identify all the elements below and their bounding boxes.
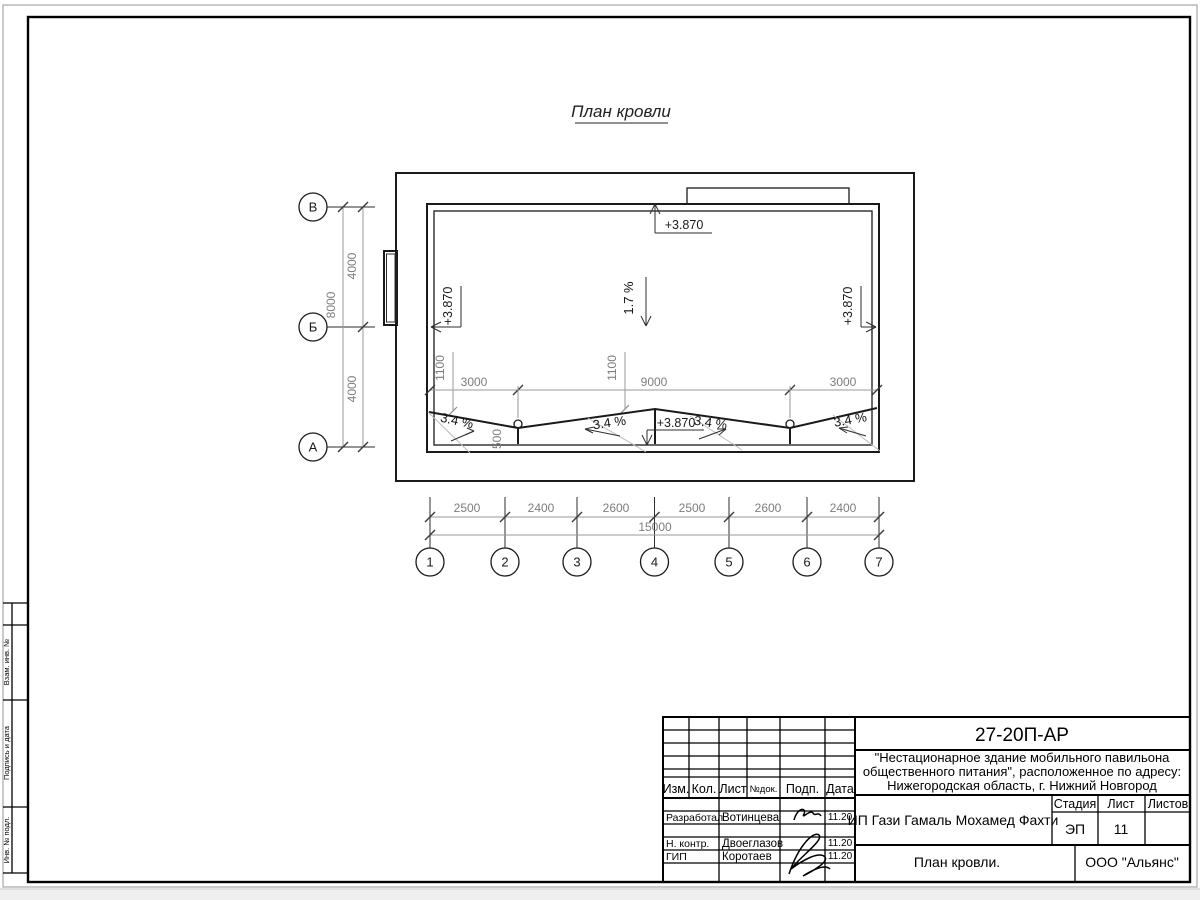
tb-role-developer: Разработал <box>666 812 723 824</box>
dim-drain-offset-500: 500 <box>490 429 504 449</box>
axis-label-7: 7 <box>875 555 882 570</box>
elevation-mark-left: +3.870 <box>431 286 461 332</box>
tb-project-line-3: Нижегородская область, г. Нижний Новгоро… <box>887 778 1157 793</box>
roof-projection-left-inner <box>387 254 396 322</box>
tb-sheet-label: Лист <box>1107 797 1134 811</box>
roof-drain-2 <box>786 420 794 428</box>
roof-drain-1 <box>514 420 522 428</box>
tb-role-gip: ГИП <box>666 851 687 863</box>
dim-col-2400a: 2400 <box>528 501 555 515</box>
tb-project-line-1: "Нестационарное здание мобильного павиль… <box>875 750 1171 765</box>
drawing-canvas: План кровли 3000 9000 3000 1100 <box>0 0 1200 900</box>
tb-sheet-name: План кровли. <box>914 854 1000 870</box>
tb-client: ИП Гази Гамаль Мохамед Фахти <box>848 812 1059 828</box>
page-title: План кровли <box>571 102 671 121</box>
axis-label-a: А <box>309 440 318 455</box>
elevation-mark-right: +3.870 <box>841 286 876 332</box>
axis-label-5: 5 <box>725 555 732 570</box>
row-axes: 8000 4000 4000 В Б А <box>299 193 375 461</box>
tb-col-podp: Подп. <box>786 782 819 796</box>
dim-col-total: 15000 <box>638 520 672 534</box>
axis-label-6: 6 <box>803 555 810 570</box>
tb-name-developer: Вотинцева <box>722 812 780 824</box>
roof-plan: 3000 9000 3000 1100 1100 500 <box>384 173 914 481</box>
axis-label-4: 4 <box>651 555 658 570</box>
axis-label-b: Б <box>309 320 318 335</box>
tb-stage-value: ЭП <box>1065 821 1085 837</box>
dim-roof-3000-left: 3000 <box>461 375 488 389</box>
tb-col-izm: Изм. <box>663 782 690 796</box>
dim-row-total: 8000 <box>324 291 338 318</box>
tb-role-ncontrol: Н. контр. <box>666 838 709 850</box>
elevation-mark-top: +3.870 <box>650 204 712 233</box>
axis-label-3: 3 <box>573 555 580 570</box>
dim-col-2500b: 2500 <box>679 501 706 515</box>
dim-row-4000-bottom: 4000 <box>345 375 359 402</box>
dim-valley-offset-1: 1100 <box>433 355 447 381</box>
slope-label-4: 3.4 % <box>833 409 869 430</box>
tb-date-ncontrol: 11.20 <box>828 838 853 849</box>
drawing-sheet: План кровли 3000 9000 3000 1100 <box>0 0 1200 900</box>
side-stamp-label-1: Взам. инв. № <box>2 639 11 685</box>
tb-doc-number: 27-20П-АР <box>975 725 1069 746</box>
axis-label-v: В <box>309 200 318 215</box>
main-slope-mark: 1.7 % <box>621 277 651 326</box>
dim-valley-offset-2: 1100 <box>605 355 619 381</box>
tb-sheet-value: 11 <box>1114 821 1129 837</box>
slope-label-2: 3.4 % <box>592 413 627 433</box>
title-block: Изм. Кол. Лист №док. Подп. Дата Разработ… <box>663 717 1190 882</box>
dim-row-4000-top: 4000 <box>345 252 359 279</box>
tb-company: ООО "Альянс" <box>1085 854 1179 870</box>
tb-sheets-label: Листов <box>1148 797 1189 811</box>
tb-col-kol: Кол. <box>692 782 717 796</box>
tb-project-line-2: общественного питания", расположенное по… <box>863 764 1181 779</box>
elevation-value-left: +3.870 <box>441 287 455 326</box>
tb-col-list: Лист <box>719 782 746 796</box>
tb-name-ncontrol: Двоеглазов <box>722 838 783 850</box>
tb-col-ndok: №док. <box>750 784 778 795</box>
dim-roof-3000-right: 3000 <box>830 375 857 389</box>
axis-label-1: 1 <box>426 555 433 570</box>
roof-edge-outer <box>427 204 879 452</box>
signature-gip <box>789 834 830 876</box>
axis-label-2: 2 <box>501 555 508 570</box>
roof-interior-dimension: 3000 9000 3000 <box>425 375 882 395</box>
dim-roof-9000: 9000 <box>641 375 668 389</box>
dim-col-2600a: 2600 <box>603 501 630 515</box>
side-stamp: Взам. инв. № Подпись и дата Инв. № подл. <box>2 603 28 873</box>
elevation-value-ridge: +3.870 <box>657 416 696 430</box>
tb-stage-label: Стадия <box>1054 797 1097 811</box>
elevation-value-top: +3.870 <box>665 218 704 232</box>
roof-valley-lines: 500 <box>429 386 877 449</box>
side-stamp-label-3: Инв. № подл. <box>2 817 11 864</box>
elevation-value-right: +3.870 <box>841 287 855 326</box>
column-axes: 2500 2400 2600 2500 2600 2400 15000 1 2 … <box>416 497 893 576</box>
sheet-title: План кровли <box>571 102 671 123</box>
dim-col-2500a: 2500 <box>454 501 481 515</box>
elevation-mark-ridge: +3.870 <box>642 416 704 445</box>
tb-date-gip: 11.20 <box>828 851 853 862</box>
dim-col-2600b: 2600 <box>755 501 782 515</box>
roof-projection-top <box>687 188 849 204</box>
tb-name-gip: Коротаев <box>722 851 772 863</box>
side-stamp-label-2: Подпись и дата <box>2 725 11 780</box>
valley-zigzag <box>429 408 877 428</box>
dim-col-2400b: 2400 <box>830 501 857 515</box>
tb-col-data: Дата <box>826 782 854 796</box>
main-slope-label: 1.7 % <box>621 281 636 315</box>
